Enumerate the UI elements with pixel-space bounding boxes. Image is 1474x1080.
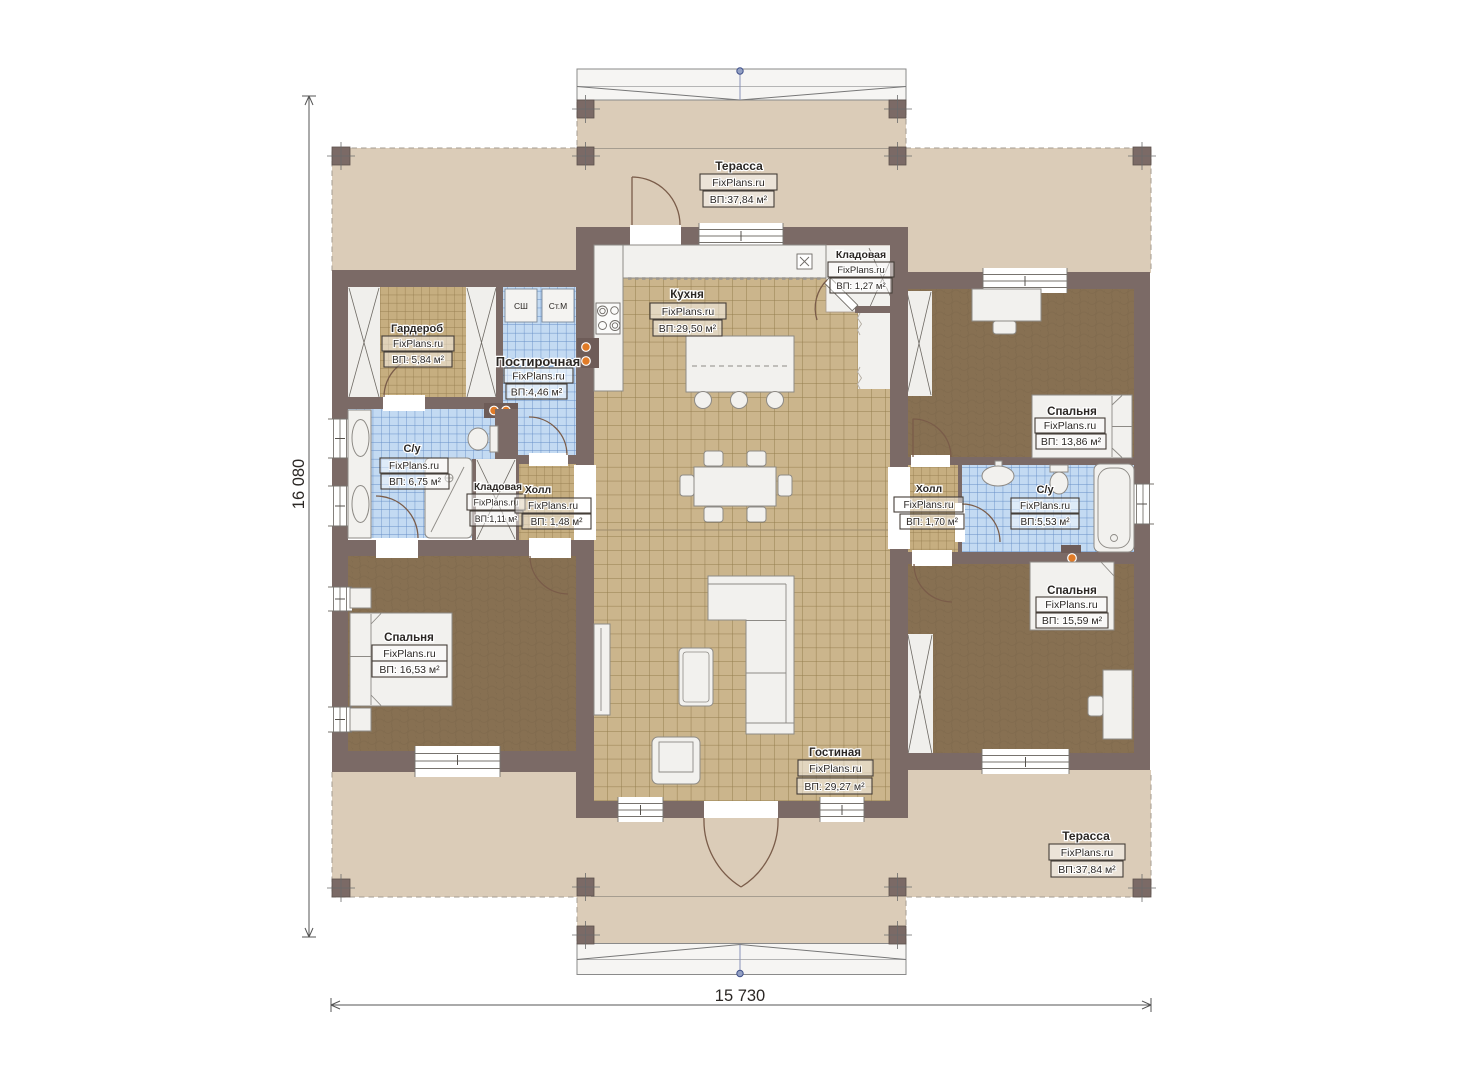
svg-text:Спальня: Спальня: [1047, 406, 1097, 418]
svg-text:ВП:37,84 м²: ВП:37,84 м²: [710, 194, 768, 206]
svg-text:ВП: 16,53 м²: ВП: 16,53 м²: [379, 664, 440, 676]
svg-text:FixPlans.ru: FixPlans.ru: [1020, 501, 1070, 512]
svg-text:Гардероб: Гардероб: [391, 323, 443, 335]
svg-text:С/у: С/у: [403, 443, 421, 455]
svg-text:FixPlans.ru: FixPlans.ru: [903, 500, 953, 511]
svg-text:FixPlans.ru: FixPlans.ru: [809, 763, 862, 775]
svg-text:FixPlans.ru: FixPlans.ru: [712, 177, 765, 189]
svg-text:Терасса: Терасса: [1062, 829, 1110, 843]
svg-text:FixPlans.ru: FixPlans.ru: [473, 498, 518, 508]
svg-text:FixPlans.ru: FixPlans.ru: [528, 501, 578, 512]
svg-text:ВП: 13,86 м²: ВП: 13,86 м²: [1041, 436, 1102, 448]
svg-text:ВП: 15,59 м²: ВП: 15,59 м²: [1042, 615, 1103, 627]
svg-text:Кухня: Кухня: [670, 289, 704, 301]
svg-text:ВП: 1,27 м²: ВП: 1,27 м²: [836, 281, 885, 292]
svg-text:FixPlans.ru: FixPlans.ru: [393, 339, 443, 350]
svg-text:С/у: С/у: [1036, 484, 1054, 496]
svg-text:15 730: 15 730: [715, 987, 765, 1005]
svg-text:Постирочная: Постирочная: [496, 354, 580, 369]
svg-text:ВП:1,11 м²: ВП:1,11 м²: [475, 514, 518, 524]
svg-text:16 080: 16 080: [290, 459, 308, 509]
svg-text:ВП: 5,84 м²: ВП: 5,84 м²: [392, 355, 445, 366]
svg-text:FixPlans.ru: FixPlans.ru: [389, 461, 439, 472]
svg-text:FixPlans.ru: FixPlans.ru: [1044, 420, 1097, 432]
svg-text:ВП: 29,27 м²: ВП: 29,27 м²: [804, 781, 865, 793]
svg-text:Спальня: Спальня: [384, 632, 434, 644]
svg-text:Кладовая: Кладовая: [836, 249, 886, 261]
svg-text:Спальня: Спальня: [1047, 585, 1097, 597]
svg-text:FixPlans.ru: FixPlans.ru: [383, 648, 436, 660]
svg-text:Ст.М: Ст.М: [549, 301, 568, 311]
svg-text:ВП: 1,70 м²: ВП: 1,70 м²: [906, 517, 959, 528]
svg-text:FixPlans.ru: FixPlans.ru: [1061, 847, 1114, 859]
svg-text:Гостиная: Гостиная: [809, 747, 861, 759]
svg-text:ВП:37,84 м²: ВП:37,84 м²: [1058, 864, 1116, 876]
svg-text:ВП:29,50 м²: ВП:29,50 м²: [659, 323, 717, 335]
svg-text:Холл: Холл: [525, 484, 551, 496]
svg-text:ВП: 6,75 м²: ВП: 6,75 м²: [389, 477, 442, 488]
svg-text:Холл: Холл: [916, 483, 942, 495]
svg-text:ВП:4,46 м²: ВП:4,46 м²: [511, 387, 563, 399]
svg-text:FixPlans.ru: FixPlans.ru: [662, 306, 715, 318]
svg-text:FixPlans.ru: FixPlans.ru: [837, 265, 885, 276]
svg-text:Кладовая: Кладовая: [474, 482, 522, 493]
svg-text:FixPlans.ru: FixPlans.ru: [1045, 599, 1098, 611]
svg-text:Терасса: Терасса: [715, 159, 763, 173]
svg-text:СШ: СШ: [514, 301, 528, 311]
svg-text:FixPlans.ru: FixPlans.ru: [512, 371, 565, 383]
svg-text:ВП:5,53 м²: ВП:5,53 м²: [1020, 517, 1070, 528]
svg-text:ВП: 1,48 м²: ВП: 1,48 м²: [531, 517, 584, 528]
